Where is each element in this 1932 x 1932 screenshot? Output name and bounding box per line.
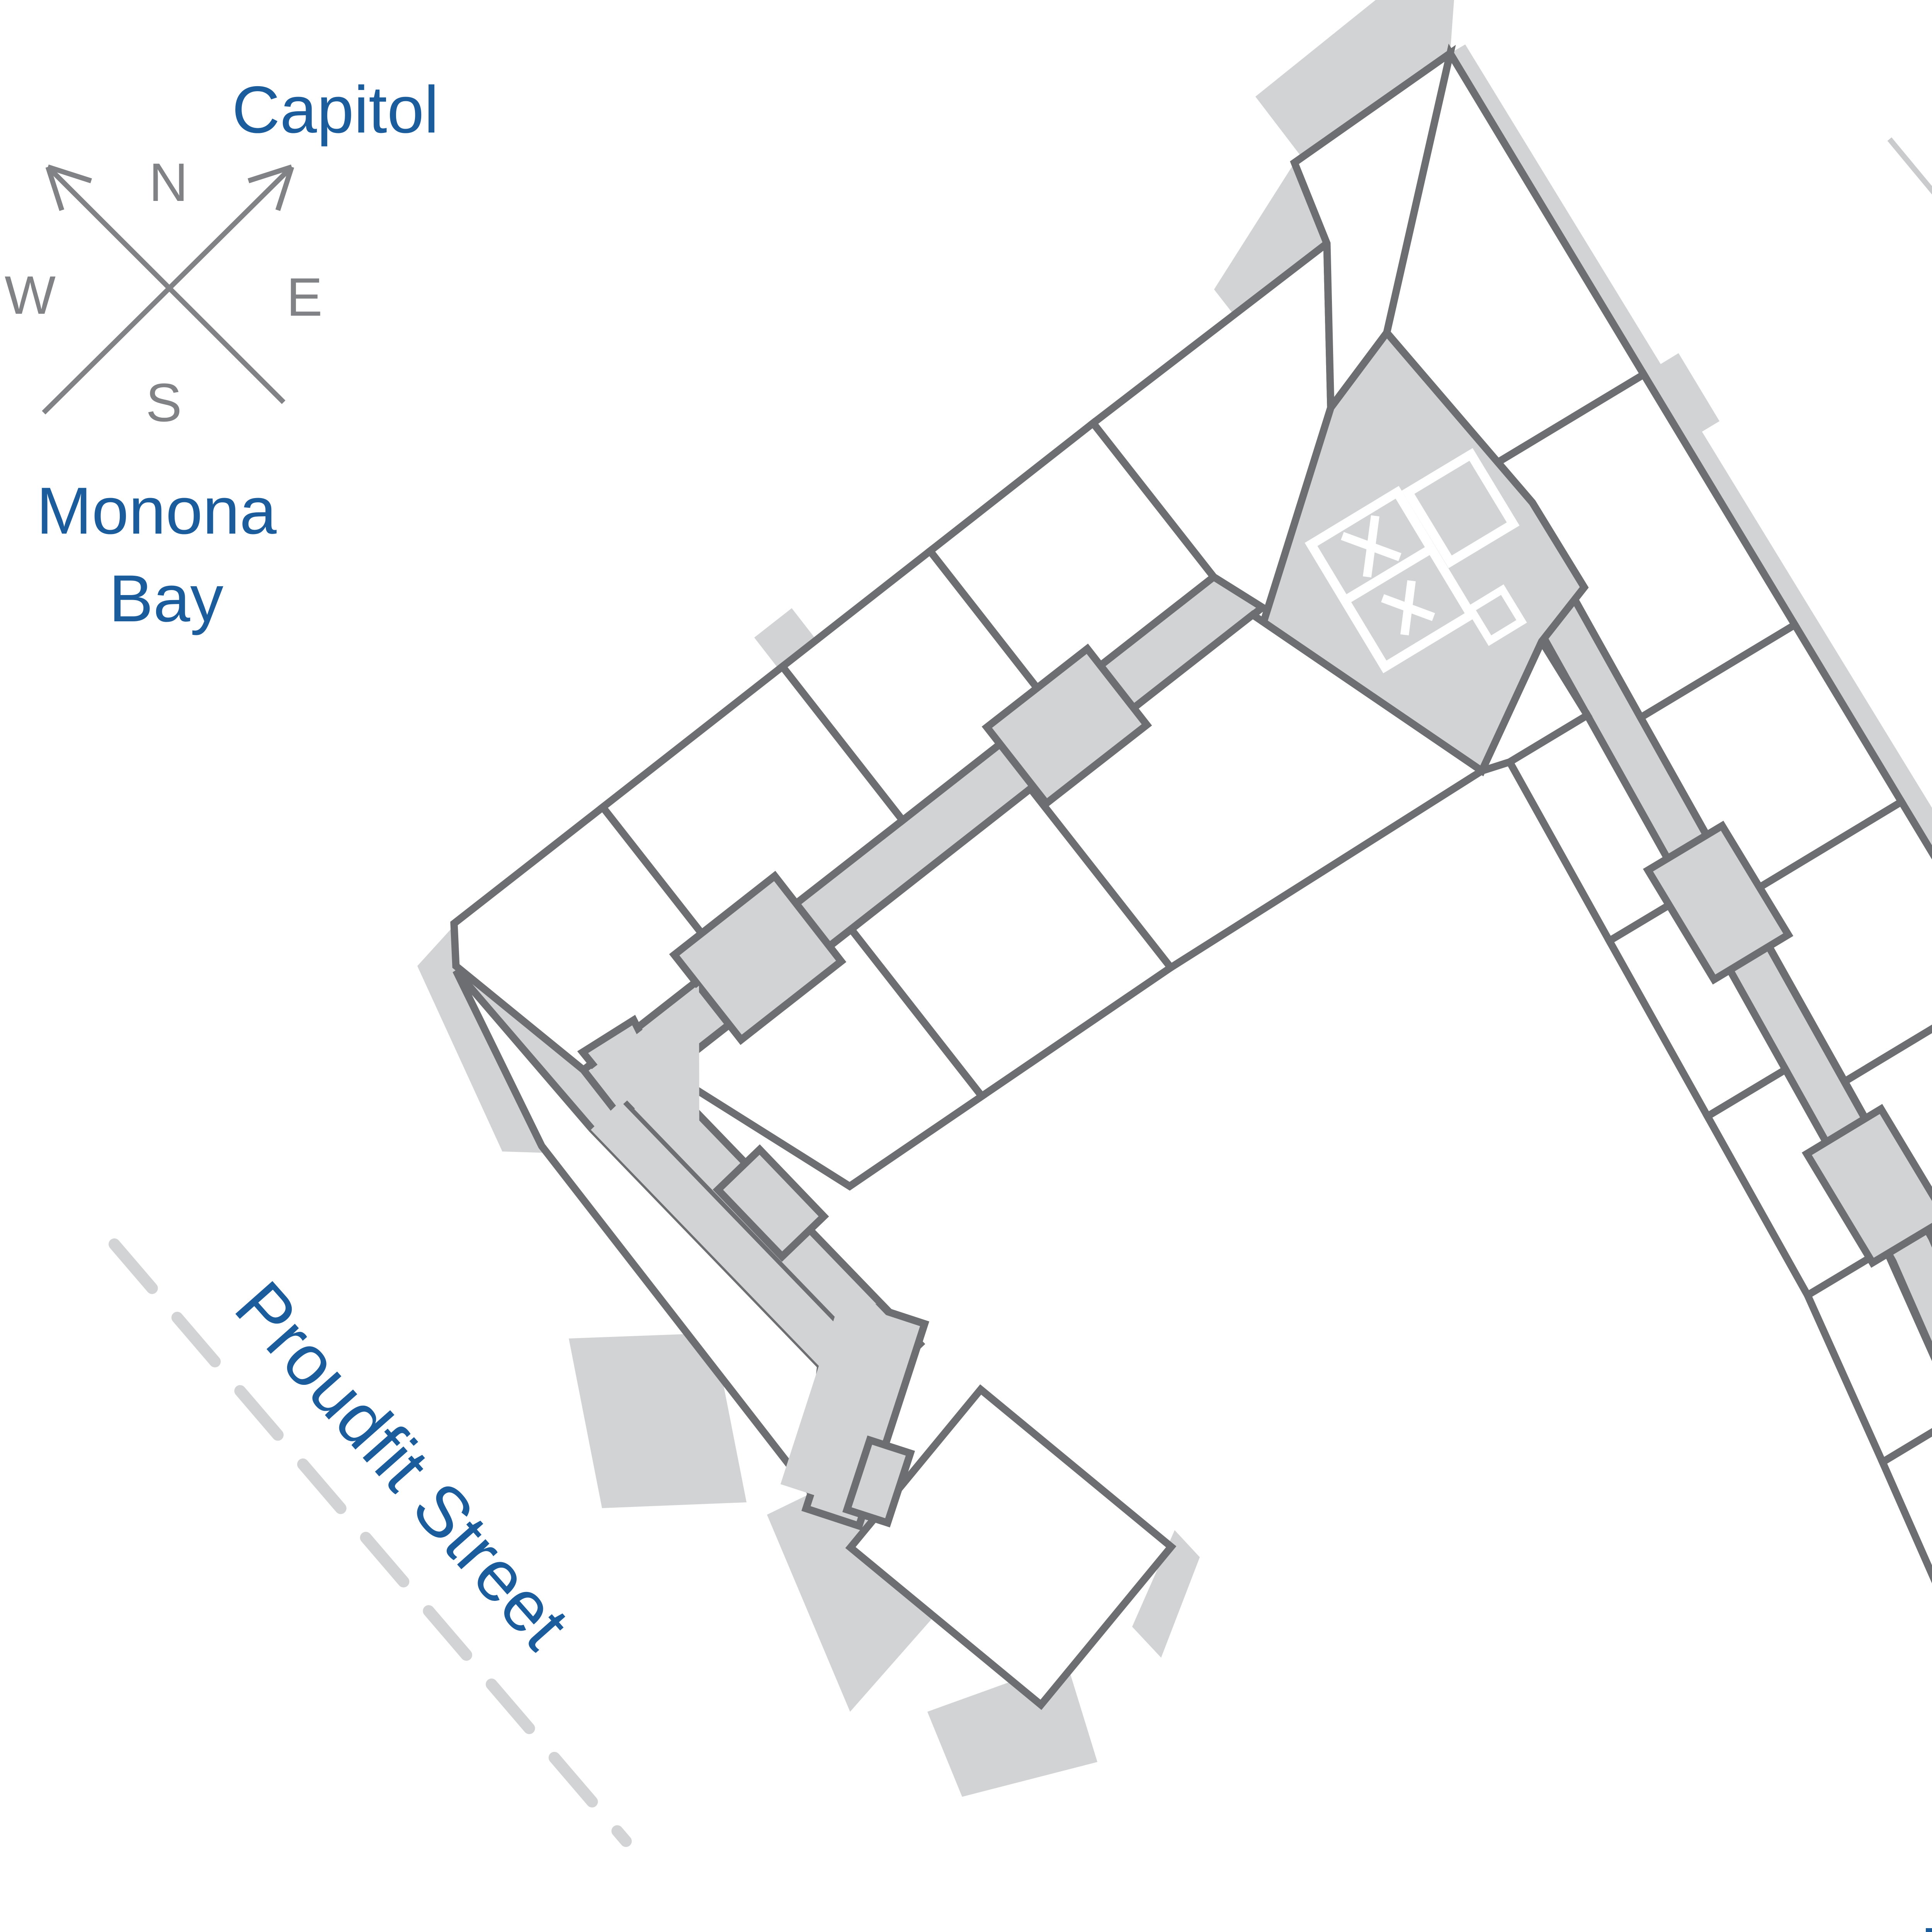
svg-text:S: S [146,372,182,433]
svg-text:North Shore Drive: North Shore Drive [1920,1913,1932,1932]
svg-text:W: W [5,265,56,325]
svg-text:Monona: Monona [36,474,277,548]
svg-text:Bay: Bay [109,561,223,636]
svg-text:Capitol: Capitol [232,73,439,147]
svg-text:E: E [286,267,322,327]
svg-text:N: N [149,152,188,213]
